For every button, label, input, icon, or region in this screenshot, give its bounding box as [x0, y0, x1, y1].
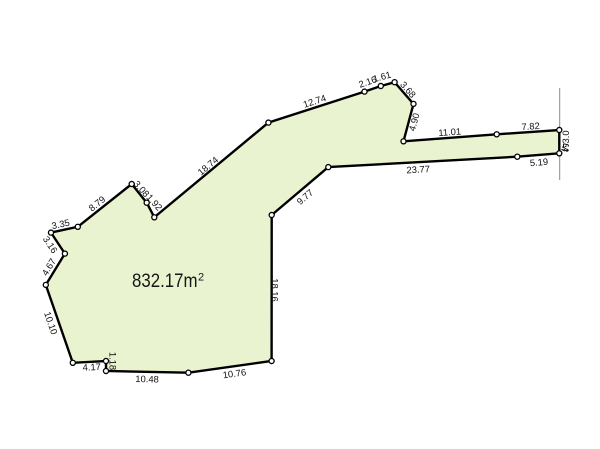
svg-text:11.01: 11.01	[438, 125, 462, 138]
svg-text:23.77: 23.77	[406, 163, 430, 175]
svg-text:3.0: 3.0	[560, 130, 571, 143]
svg-text:10.48: 10.48	[135, 373, 159, 384]
svg-text:1.61: 1.61	[372, 69, 393, 84]
svg-text:4.17: 4.17	[82, 361, 101, 373]
svg-text:7.82: 7.82	[521, 120, 540, 132]
svg-text:5.19: 5.19	[529, 156, 548, 168]
svg-text:10.76: 10.76	[222, 366, 247, 380]
svg-text:832.17m2: 832.17m2	[132, 270, 204, 292]
svg-text:18.16: 18.16	[270, 278, 281, 301]
